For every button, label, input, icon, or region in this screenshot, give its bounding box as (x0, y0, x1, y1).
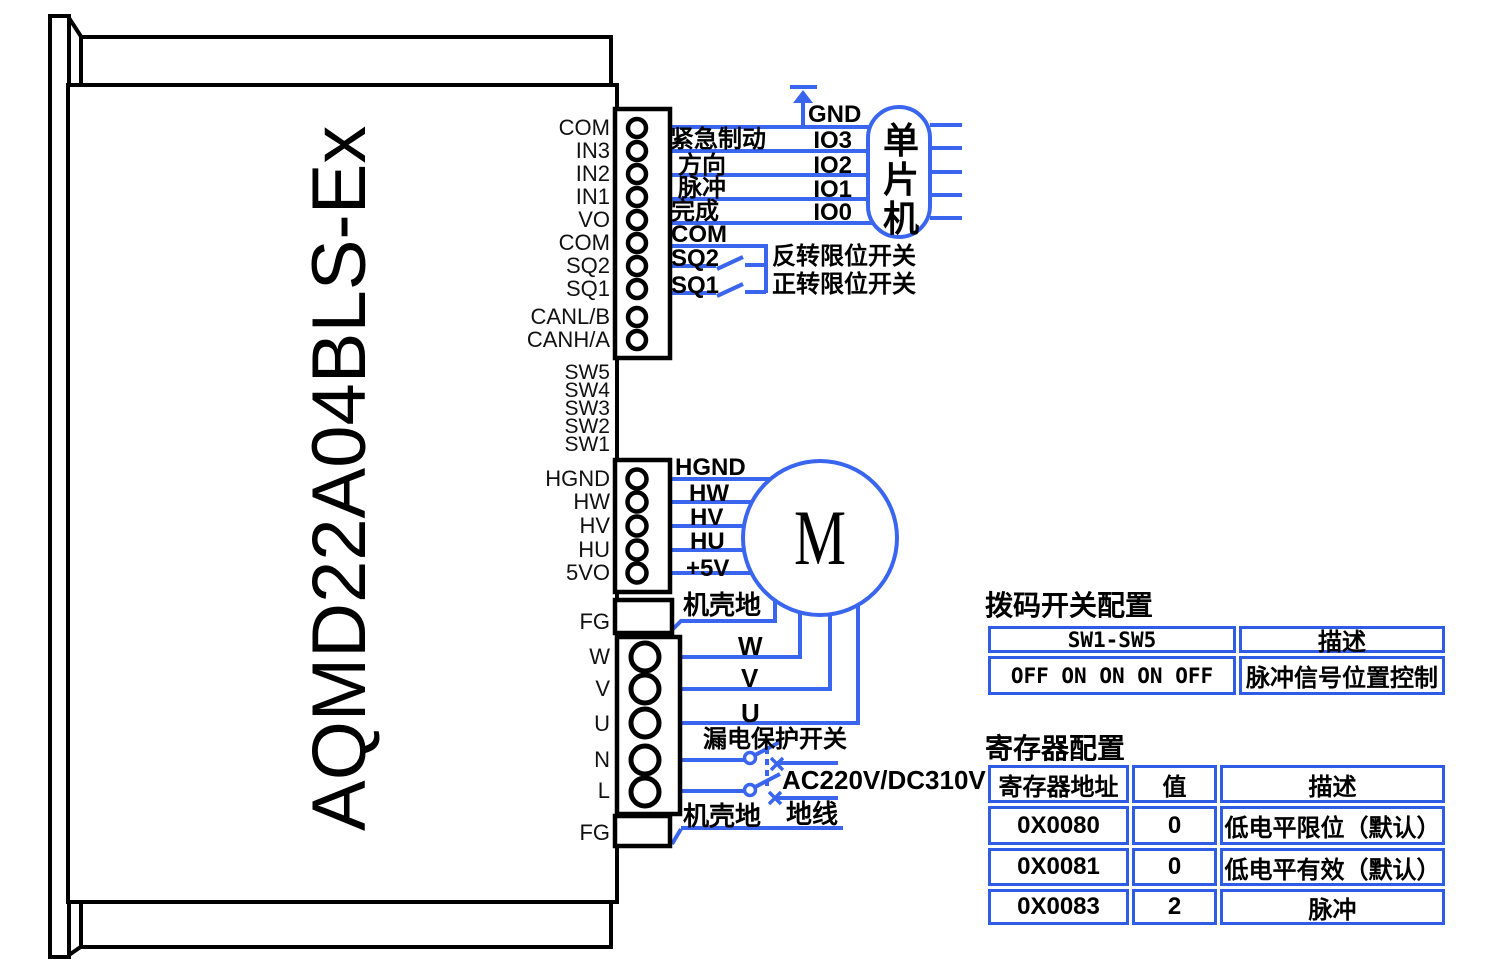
motor-symbol: M (790, 499, 850, 579)
sq2-wire-label: SQ2 (671, 246, 719, 271)
fg-terminal-bottom (615, 816, 670, 846)
pin-label-hgnd: HGND (470, 467, 610, 490)
reg-row-addr: 0X0080 (988, 806, 1129, 845)
sq1-switch-blade (717, 284, 743, 296)
pin-label-fg-top: FG (470, 610, 610, 633)
signal-terminal-block (615, 109, 670, 358)
breaker-pivot-n (745, 753, 756, 764)
reg-row-value: 0 (1132, 806, 1217, 845)
hall-terminal-block (615, 460, 670, 592)
reg-header-desc: 描述 (1220, 765, 1445, 803)
reverse-limit-label: 反转限位开关 (772, 244, 916, 269)
earth-diag-wire (672, 829, 681, 844)
dip-value: OFF ON ON ON OFF (988, 656, 1236, 695)
pin-label-hu: HU (470, 538, 610, 561)
signal-label-brake: 紧急制动 (670, 127, 766, 152)
hv-wire-label: HV (690, 505, 723, 530)
sq2-switch-blade (717, 257, 743, 269)
case-ground-bottom-label: 机壳地 (683, 803, 761, 830)
device-model-label: AQMD22A04BLS-Ex (297, 131, 383, 831)
reg-row-desc: 低电平有效（默认） (1220, 848, 1445, 886)
reg-header-value: 值 (1132, 765, 1217, 803)
bottom-cap (81, 902, 611, 947)
reg-table-title: 寄存器配置 (985, 734, 1125, 764)
hall-terminal-holes (628, 470, 647, 583)
forward-limit-label: 正转限位开关 (772, 272, 916, 297)
earth-label: 地线 (786, 801, 838, 828)
reg-row-addr: 0X0081 (988, 848, 1129, 886)
power-terminal-block (617, 637, 680, 814)
supply-label: AC220V/DC310V (782, 767, 986, 794)
pin-label-sq2: SQ2 (470, 254, 610, 277)
pin-label-w: W (470, 645, 610, 668)
dip-table-title: 拨码开关配置 (985, 591, 1153, 621)
reg-table: 寄存器地址 值 描述 0X0080 0 低电平限位（默认） 0X0081 0 低… (988, 765, 1445, 925)
pin-label-canha: CANH/A (470, 328, 610, 351)
phase-v-label: V (741, 665, 758, 692)
hw-wire-label: HW (689, 481, 729, 506)
pin-label-u: U (470, 712, 610, 735)
top-cap (81, 37, 611, 85)
pin-label-sw1: SW1 (470, 436, 610, 454)
pin-label-canlb: CANL/B (470, 305, 610, 328)
reg-row-value: 0 (1132, 848, 1217, 886)
pin-label-com1: COM (470, 116, 610, 139)
hu-wire-label: HU (690, 529, 725, 554)
pin-label-hv: HV (470, 514, 610, 537)
pin-label-sq1: SQ1 (470, 277, 610, 300)
dip-header-sw: SW1-SW5 (988, 626, 1236, 653)
wiring-diagram: AQMD22A04BLS-Ex COM IN3 IN2 IN1 VO COM S… (0, 0, 1500, 968)
mcu-label: 单 片 机 (879, 121, 923, 238)
sq1-wire-label: SQ1 (671, 273, 719, 298)
pin-label-l: L (470, 779, 610, 802)
signal-terminal-holes (628, 119, 646, 349)
pin-label-com2: COM (470, 231, 610, 254)
pin-label-5vo: 5VO (470, 561, 610, 584)
pin-label-n: N (470, 748, 610, 771)
p5v-wire-label: +5V (686, 556, 729, 581)
reg-row-value: 2 (1132, 889, 1217, 925)
io0-label: IO0 (788, 200, 852, 225)
dip-table: SW1-SW5 描述 OFF ON ON ON OFF 脉冲信号位置控制 (988, 626, 1445, 695)
breaker-pivot-l (745, 785, 756, 796)
phase-w-label: W (738, 633, 763, 660)
pin-label-hw: HW (470, 490, 610, 513)
pin-label-v: V (470, 677, 610, 700)
phase-u-label: U (741, 700, 760, 727)
reg-row-desc: 脉冲 (1220, 889, 1445, 925)
gnd-label: GND (808, 102, 861, 127)
pin-label-in1: IN1 (470, 185, 610, 208)
dip-header-desc: 描述 (1239, 626, 1445, 653)
case-ground-top-label: 机壳地 (683, 592, 761, 619)
io3-label: IO3 (788, 128, 852, 153)
reg-row-desc: 低电平限位（默认） (1220, 806, 1445, 845)
pin-label-in3: IN3 (470, 139, 610, 162)
power-terminal-holes (631, 643, 659, 806)
pin-label-vo: VO (470, 208, 610, 231)
fg-terminal-top (615, 600, 672, 633)
breaker-label: 漏电保护开关 (703, 727, 847, 752)
pin-label-in2: IN2 (470, 162, 610, 185)
reg-header-addr: 寄存器地址 (988, 765, 1129, 803)
pin-label-fg-bottom: FG (470, 821, 610, 844)
dip-desc: 脉冲信号位置控制 (1239, 656, 1445, 695)
hgnd-wire-label: HGND (675, 455, 746, 480)
io2-label: IO2 (788, 153, 852, 178)
com-wire-label: COM (671, 222, 727, 247)
reg-row-addr: 0X0083 (988, 889, 1129, 925)
